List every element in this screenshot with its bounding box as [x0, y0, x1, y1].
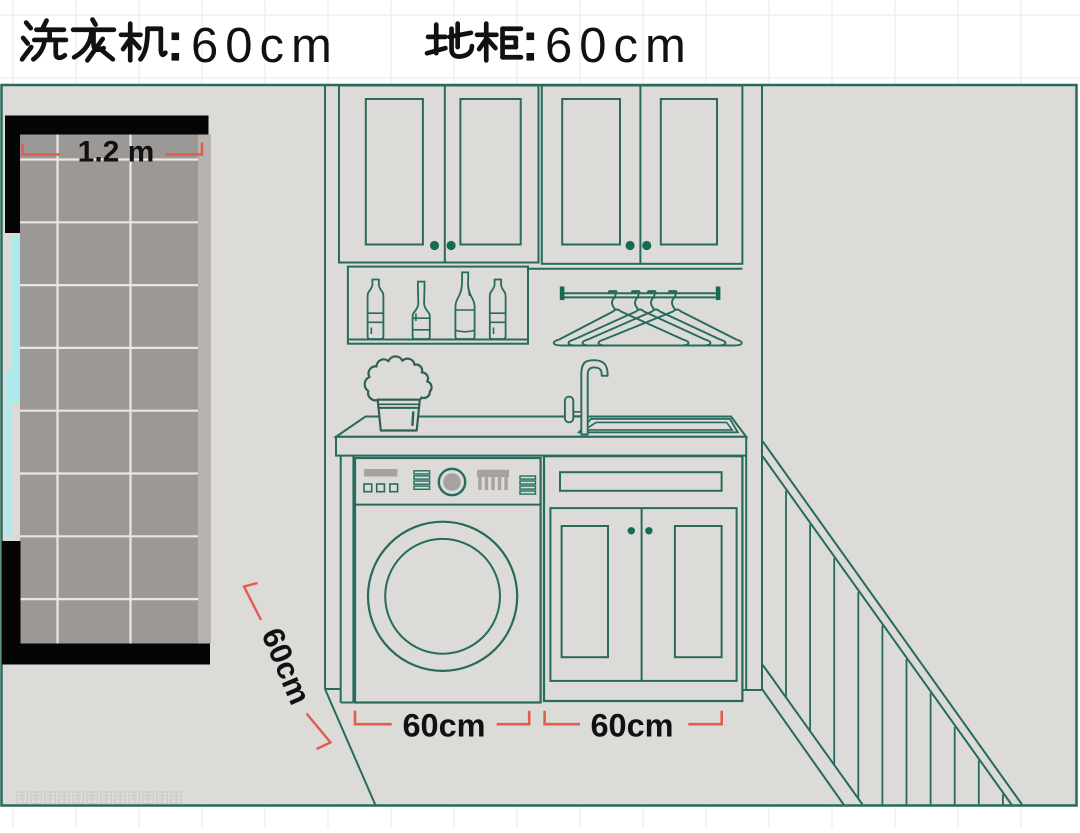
svg-text:1.2 m: 1.2 m: [78, 136, 155, 169]
svg-text:60cm: 60cm: [590, 708, 673, 744]
svg-text:60cm: 60cm: [402, 708, 485, 744]
svg-text:60cm: 60cm: [191, 19, 339, 73]
svg-text:60cm: 60cm: [545, 19, 693, 73]
